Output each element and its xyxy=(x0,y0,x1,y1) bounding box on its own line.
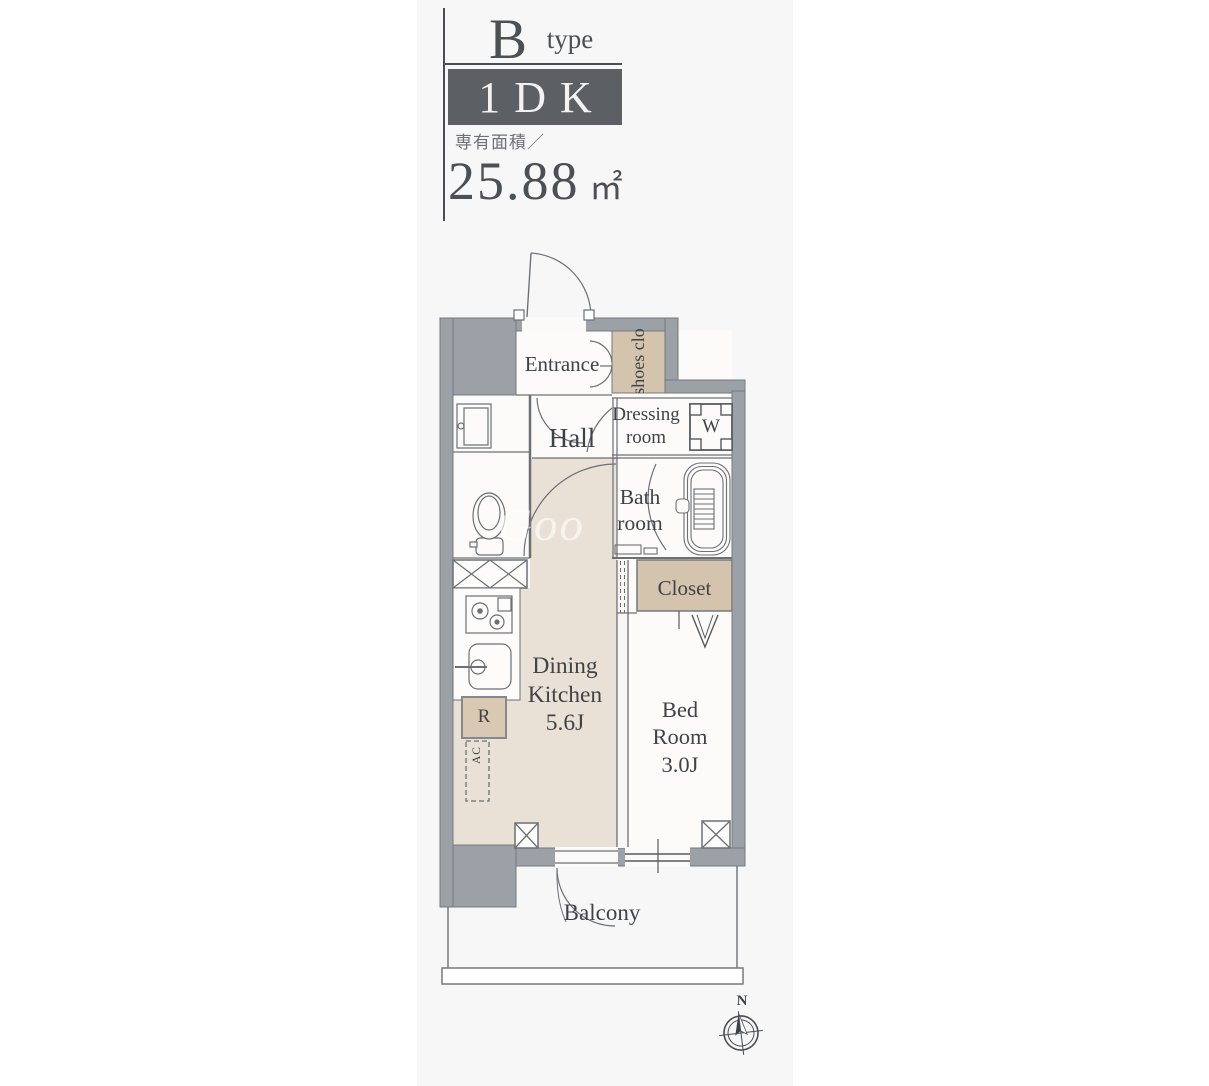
compass-north-label: N xyxy=(731,992,753,1010)
pillar-crossbox-left xyxy=(515,823,538,848)
washer-label: W xyxy=(690,415,732,438)
floorplan-page: B type 1DK 専有面積／ 25.88 ㎡ Goo Entrance sh… xyxy=(0,0,1209,1086)
dk-balcony-threshold xyxy=(555,847,618,867)
room-label-balcony: Balcony xyxy=(552,899,652,927)
fridge-label: R xyxy=(462,705,506,728)
plan-type-word: type xyxy=(540,23,600,56)
entrance-door-arc xyxy=(514,253,594,332)
watermark: Goo xyxy=(498,498,585,552)
room-label-shoes-closet: shoes clo xyxy=(612,329,665,393)
room-label-hall: Hall xyxy=(532,422,612,455)
area-value-row: 25.88 ㎡ xyxy=(448,150,623,212)
room-label-dressing: Dressing room xyxy=(605,403,687,449)
header-left-rule xyxy=(443,8,445,221)
room-label-entrance: Entrance xyxy=(514,352,610,378)
pillar-crossbox-right xyxy=(702,821,730,848)
area-value: 25.88 xyxy=(448,150,580,212)
ac-label: AC xyxy=(470,737,484,773)
layout-badge: 1DK xyxy=(448,69,622,125)
ps-crossbox xyxy=(453,560,527,588)
layout-badge-text: 1DK xyxy=(464,72,606,123)
room-label-closet: Closet xyxy=(637,576,732,602)
header-underline xyxy=(443,63,622,65)
room-label-bedroom: Bed Room 3.0J xyxy=(628,696,732,778)
room-label-bath: Bath room xyxy=(602,484,678,536)
room-label-dining-kitchen: Dining Kitchen 5.6J xyxy=(513,652,617,738)
balcony-railing xyxy=(442,968,743,984)
area-unit: ㎡ xyxy=(590,161,623,209)
compass-icon xyxy=(716,1008,765,1057)
